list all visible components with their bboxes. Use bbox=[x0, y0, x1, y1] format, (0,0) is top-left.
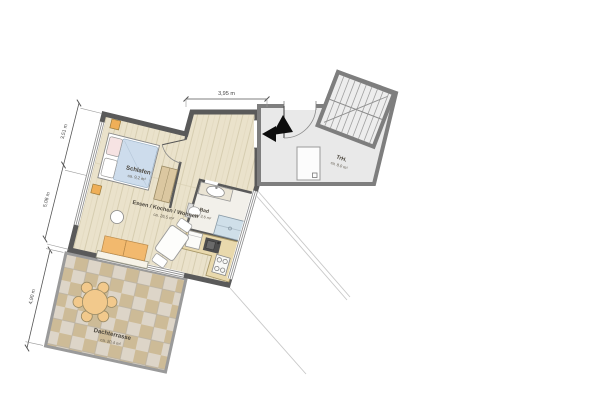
entry-door-opening bbox=[284, 101, 316, 110]
room-stairwell bbox=[259, 72, 396, 184]
nightstand bbox=[110, 119, 121, 130]
dimension-top: 3,95 m bbox=[184, 91, 270, 107]
side-table bbox=[111, 211, 124, 224]
floor-plan-canvas: Schlafen ca. 9,2 m² Essen / Kochen / Woh… bbox=[0, 0, 600, 400]
elevator bbox=[297, 147, 320, 180]
dimension-label-terrace: 4,90 m bbox=[28, 289, 37, 305]
dimension-label-left-upper: 3,51 m bbox=[60, 124, 70, 140]
floor-plan-svg: Schlafen ca. 9,2 m² Essen / Kochen / Woh… bbox=[0, 0, 600, 400]
nightstand bbox=[91, 184, 102, 195]
dimension-label-top: 3,95 m bbox=[218, 91, 235, 97]
dimension-label-left-lower: 5,08 m bbox=[42, 192, 52, 208]
